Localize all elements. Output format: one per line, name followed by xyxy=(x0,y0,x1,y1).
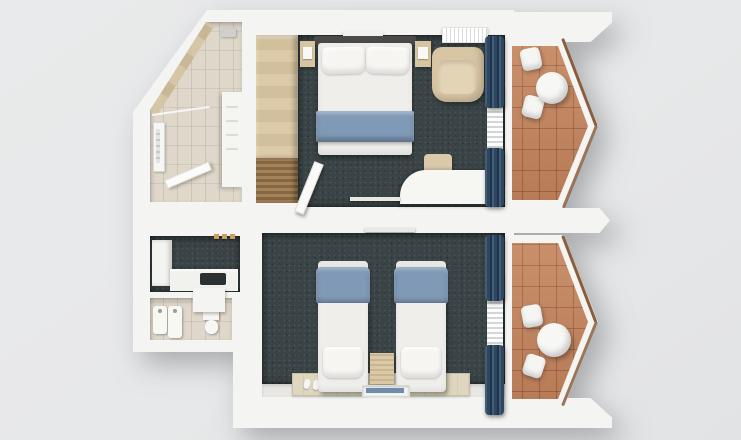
blue-blanket xyxy=(394,267,448,305)
lower-balcony xyxy=(506,230,598,412)
blue-bed-runner xyxy=(316,111,414,142)
nightstand-item xyxy=(303,47,312,59)
white-cabinet xyxy=(152,240,172,286)
blue-blanket xyxy=(316,267,370,305)
upper-balcony xyxy=(506,34,598,212)
wall-hook xyxy=(214,234,219,239)
curtain xyxy=(485,36,504,108)
wall-hook xyxy=(230,234,235,239)
pillow xyxy=(366,46,410,74)
curtain xyxy=(485,345,504,415)
wall-hook xyxy=(222,234,227,239)
towel-rail xyxy=(153,122,165,172)
desk xyxy=(400,170,490,204)
toilet-tank xyxy=(203,312,219,320)
curtain xyxy=(485,235,504,301)
balcony-chair xyxy=(519,46,543,72)
wall-tv xyxy=(350,197,400,201)
shower-set xyxy=(220,28,236,37)
hob-sink xyxy=(200,273,226,285)
lower-bedroom xyxy=(262,233,505,398)
upper-bathroom xyxy=(150,22,242,202)
lower-entry-hall xyxy=(150,236,240,292)
bathroom-vanity xyxy=(222,92,242,187)
curtain xyxy=(485,148,504,207)
balcony-round-table xyxy=(537,323,571,357)
tap xyxy=(173,309,177,313)
single-bed-left xyxy=(316,261,370,392)
middle-nightstand xyxy=(370,353,394,384)
lower-balcony-floor xyxy=(506,230,598,412)
armchair xyxy=(432,47,484,102)
balcony-chair xyxy=(520,303,544,328)
upper-balcony-floor xyxy=(506,34,598,212)
toilet-bowl xyxy=(205,320,218,334)
bathroom-door-open xyxy=(164,162,212,189)
tap xyxy=(158,309,162,313)
floorplan-scene xyxy=(0,0,741,440)
air-conditioner xyxy=(442,27,488,43)
pillow xyxy=(401,347,441,378)
wardrobe xyxy=(256,35,298,158)
pillow xyxy=(322,46,366,74)
low-window xyxy=(362,385,410,397)
building-structure xyxy=(0,0,741,440)
balcony-round-table xyxy=(536,72,568,104)
nightstand-item xyxy=(418,47,428,59)
upper-bedroom xyxy=(256,35,505,207)
louvered-bench xyxy=(256,158,298,203)
bathroom-wall-stub xyxy=(193,288,225,312)
pillow xyxy=(323,347,363,378)
bathroom-chamfer-wall-tiles xyxy=(150,21,214,114)
single-bed-right xyxy=(394,261,448,392)
wall-tv xyxy=(365,228,415,232)
